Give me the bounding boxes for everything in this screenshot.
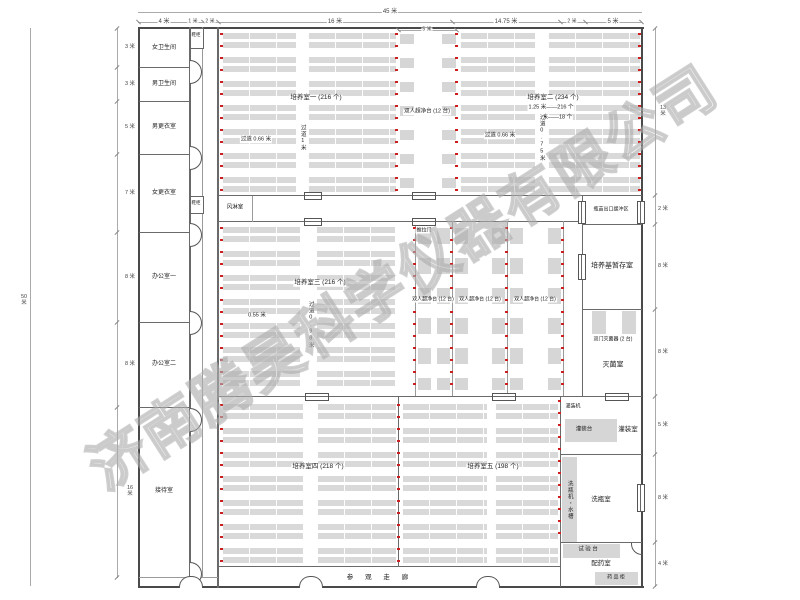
room-label-men-wc: 男卫生间 (151, 81, 177, 87)
floor-plan: 济南腾昊科学仪器有限公司 (0, 0, 800, 600)
label-shoe-cabinet-2: 鞋柜 (191, 201, 202, 206)
dim-right-1: 2 米 (658, 206, 669, 212)
dots-b2 (397, 404, 400, 564)
room-label-culture5: 培养室五 (198 个) (466, 464, 519, 471)
label-corridor: 参 观 走 廊 (346, 575, 414, 582)
label-bench-bay1: 双人超净台 (12 台) (411, 298, 455, 303)
sliding-door-bot-1 (305, 393, 329, 401)
dim-right-5: 8 米 (658, 495, 669, 501)
label-bench-top: 双人超净台 (12 台) (403, 109, 451, 115)
room-label-sterilize: 灭菌室 (602, 362, 625, 369)
dim-right-3: 8 米 (658, 349, 669, 355)
sliding-door-mid-2 (412, 218, 436, 226)
sliding-door-top-2 (412, 192, 436, 200)
dots-b3 (558, 400, 561, 542)
bench-bay3-right (510, 228, 523, 390)
shelves-culture4-left (222, 404, 303, 564)
door-office2 (190, 408, 202, 432)
dim-left-6: 16 米 (125, 485, 136, 497)
dim-right-4: 5 米 (658, 422, 669, 428)
shelves-culture1-left (222, 33, 296, 192)
sterilizer-1 (592, 311, 606, 334)
door-bottom-3 (476, 576, 500, 588)
wall-corridor-strip (202, 27, 203, 578)
sliding-door-fill (605, 393, 629, 401)
shelves-culture2-left (460, 33, 535, 192)
wall-storage-bottom (582, 309, 642, 310)
dim-line-left-seg (117, 28, 118, 578)
dim-right-0: 13 米 (658, 105, 669, 117)
wall-wash-disp (560, 542, 642, 543)
label-bottle-washer: 洗瓶机・水槽 (566, 481, 572, 520)
dim-top-16: 16 米 (327, 19, 343, 25)
shelves-culture5-right (495, 404, 558, 564)
wall-div-office1 (139, 322, 190, 323)
dim-top-5: 5 米 (606, 19, 619, 25)
door-bottom-2 (299, 576, 323, 588)
dim-left-1: 3 米 (125, 81, 136, 87)
dots-m1 (220, 227, 223, 390)
label-shoe-cabinet-1: 鞋柜 (191, 33, 202, 38)
wall-fill-wash (560, 454, 642, 455)
wall-div-office2 (139, 407, 190, 408)
dim-left-total: 50 米 (19, 294, 30, 306)
sliding-door-top-1 (304, 192, 322, 200)
door-dispensing (631, 543, 643, 555)
label-filling-machine: 灌装机 (564, 405, 581, 410)
room-label-culture3: 培养室三 (216 个) (293, 280, 346, 287)
label-test-bench: 试 验 台 (577, 547, 599, 553)
wall-buffer-bottom (582, 224, 642, 225)
bench-bay4-strip (548, 228, 561, 390)
wall-div-change1 (139, 154, 190, 155)
room-label-culture1: 培养室一 (216 个) (289, 95, 342, 102)
dim-right-6: 4 米 (658, 561, 669, 567)
shelves-culture5-left (402, 404, 487, 564)
dots-t1 (220, 33, 223, 191)
dots-t2 (395, 33, 398, 191)
bench-bay1-strip (418, 228, 431, 390)
label-medicine-cabinet: 药 品 柜 (606, 576, 626, 581)
outer-wall-top (138, 27, 644, 29)
dim-top-2b: 2 米 (566, 20, 577, 25)
dim-left-4: 8 米 (125, 274, 136, 280)
room-label-office2: 办公室二 (151, 361, 177, 367)
label-bench-bay3: 双人超净台 (12 台) (513, 298, 557, 303)
label-filling-table: 灌装台 (575, 427, 594, 433)
dim-left-2: 5 米 (125, 124, 136, 130)
wall-leftrooms-right (189, 27, 191, 578)
dots-t4 (638, 33, 641, 191)
dim-top-2: 2 米 (204, 20, 215, 25)
dim-top-1: 1 米 (187, 20, 198, 25)
label-aisle-055: 0.55 米 (247, 313, 267, 319)
room-label-washing: 洗瓶室 (590, 497, 612, 504)
dots-m3 (450, 227, 453, 395)
door-wc (190, 60, 202, 84)
room-label-men-change: 男更衣室 (151, 124, 177, 130)
label-aisle-066-2: 过道 0.66 米 (484, 133, 516, 139)
room-label-medium-storage: 培养基暂存室 (590, 263, 634, 270)
dim-line-left-total (30, 28, 31, 586)
sterilizer-2 (622, 311, 636, 334)
label-bench-bay2: 双人超净台 (12 台) (458, 298, 502, 303)
wall-midband-top (218, 221, 582, 222)
bench-bay2-left (437, 228, 450, 390)
shelves-culture2-right (548, 33, 640, 192)
wall-div-wc2 (139, 101, 190, 102)
dim-top-1475: 14.75 米 (494, 19, 519, 25)
bench-bay2-right (455, 228, 468, 390)
label-aisle-066-1: 过道 0.66 米 (240, 137, 272, 143)
bench-bay3-left (492, 228, 505, 390)
dim-top-4: 4 米 (157, 19, 170, 25)
dots-b1 (220, 404, 223, 564)
dots-m5 (561, 227, 564, 395)
room-label-women-change: 女更衣室 (151, 190, 177, 196)
sliding-door-bot-2 (492, 393, 516, 401)
wall-rightcol-left-mid (582, 195, 583, 396)
wall-main-left (217, 27, 219, 588)
shelves-culture3-left (222, 227, 300, 390)
dim-left-5: 8 米 (125, 361, 136, 367)
wall-airshower-right (252, 196, 253, 222)
dots-m2 (413, 227, 416, 395)
dim-left-3: 7 米 (125, 190, 136, 196)
door-office1 (190, 311, 202, 335)
outer-wall-bottom (138, 586, 644, 588)
sliding-door-mid-1 (304, 218, 322, 226)
pass-window-buffer-left (578, 201, 586, 224)
room-label-office1: 办公室一 (151, 274, 177, 280)
door-washroom-right (637, 484, 645, 512)
outer-wall-left (138, 27, 140, 588)
room-label-women-wc: 女卫生间 (151, 45, 177, 51)
window-storage (578, 254, 586, 280)
dim-top-sub5: 5 米 (421, 28, 432, 33)
wall-reception-bottom (139, 577, 218, 578)
shelves-culture1-right (308, 33, 396, 192)
pass-window-buffer-right (637, 201, 645, 224)
dots-t3 (455, 33, 458, 191)
room-label-culture2: 培养室二 (234 个) (526, 95, 579, 102)
label-aisle-098: 过道0.98米 (307, 301, 313, 349)
dim-top-total: 45 米 (382, 9, 398, 15)
label-aisle-1m: 过道1米 (299, 125, 305, 152)
label-sterilizer: 双门灭菌器 (2 台) (593, 338, 634, 343)
door-women-change (190, 223, 202, 247)
room-label-reception: 接待室 (154, 488, 174, 494)
label-sliding-door: 推拉门 (415, 229, 432, 234)
wall-corridor-bottom (218, 566, 561, 567)
label-aisle-075: 过道0.75米 (538, 114, 544, 162)
room-label-air-shower: 风淋室 (226, 205, 245, 211)
room-label-dispensing: 配药室 (590, 561, 612, 568)
wall-div-change2 (139, 232, 190, 233)
shelves-culture4-right (317, 404, 396, 564)
dim-left-0: 3 米 (125, 44, 136, 50)
room-label-filling: 灌装室 (617, 427, 639, 434)
room-label-culture4: 培养室四 (218 个) (291, 464, 344, 471)
door-men-change (190, 146, 202, 170)
wall-mid-bottom (218, 396, 642, 397)
dots-m4 (505, 227, 508, 395)
dim-right-2: 8 米 (658, 263, 669, 269)
room-label-buffer: 瓶苗出口缓冲区 (592, 208, 629, 213)
shelves-culture3-right (316, 227, 395, 390)
wall-div-wc (139, 67, 190, 68)
label-culture2-note1: 1.25 米——216 个 (528, 105, 575, 111)
